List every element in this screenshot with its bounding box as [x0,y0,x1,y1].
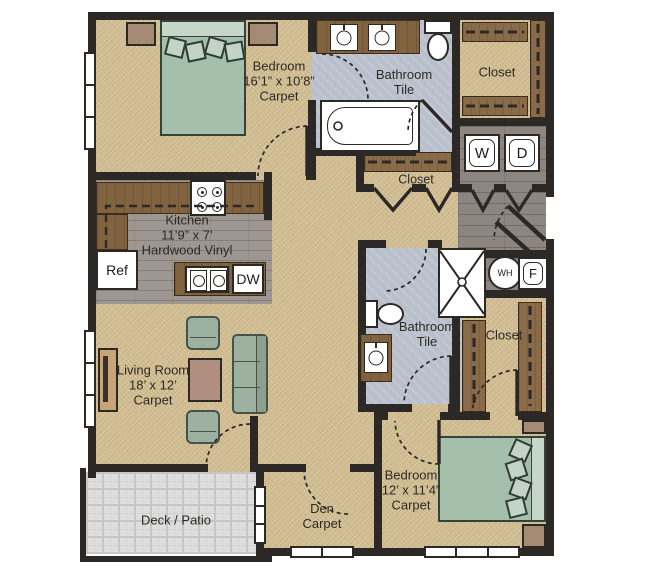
wall-living-bottom [88,464,208,472]
bathroom2-sink [364,342,388,373]
kitchen-name: Kitchen [142,213,233,228]
wall-bedroom1-bathroom1-b [308,100,316,180]
wall-kitchen-right [264,172,272,220]
kitchen-floor: Hardwood Vinyl [142,243,233,258]
living-room-dims: 18’ x 12’ [117,378,189,393]
armchair-bottom [186,410,220,444]
furnace: F [518,257,548,290]
label-bedroom2: Bedroom 12’ x 11’4” Carpet [382,468,441,513]
bathroom2-name: Bathroom [399,319,455,334]
living-room-name: Living Room [117,363,189,378]
toilet-bowl-bathroom1 [427,33,449,61]
wall-outer-top [88,12,554,20]
wall-wd-front-c [532,184,546,192]
bathroom2-floor: Tile [399,334,455,349]
wall-bedroom1-bottom [96,172,256,180]
bathroom1-floor: Tile [376,82,432,97]
sofa [232,334,268,414]
wall-utility-bottom [486,290,546,298]
den-name: Den [302,501,341,516]
washer-label: W [475,145,489,162]
refrigerator: Ref [96,250,138,290]
bedroom2-dims: 12’ x 11’4” [382,483,441,498]
closet-hall-name: Closet [398,173,433,188]
floor-plan: Ref DW WH F W D [0,0,650,585]
label-closet-hall: Closet [398,173,433,188]
window-bedroom1-left [84,52,96,150]
entry-door-gap [546,194,554,242]
tv [103,356,108,402]
closet-top-rod-upper [462,22,528,42]
nightstand-bedroom1-left [126,22,156,46]
closet-top-rod-lower [462,96,528,116]
label-bathroom1: Bathroom Tile [376,67,432,97]
bathroom1-name: Bathroom [376,67,432,82]
wall-den-top-a [250,464,306,472]
closet-top-name: Closet [479,65,516,80]
bathroom1-sink-1 [330,24,358,51]
wall-hall-closet-front-a [356,184,374,192]
wall-bathroom1-closet [452,20,460,192]
kitchen-sink [185,266,229,293]
toilet-bathroom2 [364,300,378,328]
wall-bedroom2-top-b [440,412,490,420]
wall-deck-left [80,468,86,562]
bedroom1-dims: 16’1” x 10’8” [243,74,315,89]
label-living-room: Living Room 18’ x 12’ Carpet [117,363,189,408]
dryer-label: D [517,145,528,162]
stove [190,180,226,216]
dishwasher-label: DW [236,271,259,287]
wall-closet-top-bottom [460,118,546,126]
wall-bathroom2-bottom-a [358,404,412,412]
coffee-table [188,358,222,402]
tv-console [98,348,118,412]
water-heater: WH [488,256,522,290]
label-bedroom1: Bedroom 16’1” x 10’8” Carpet [243,59,315,104]
dishwasher: DW [232,264,264,294]
kitchen-dims: 11’9” x 7’ [142,228,233,243]
nightstand-bedroom2-top [522,420,546,434]
label-kitchen: Kitchen 11’9” x 7’ Hardwood Vinyl [142,213,233,258]
wall-den-top-b [350,464,382,472]
window-living-left [84,330,96,428]
water-heater-label: WH [498,268,513,278]
window-bedroom2-bottom [424,546,520,558]
wall-wd-front-b [494,184,506,192]
closet-bedroom2-rod-left [462,320,486,412]
nightstand-bedroom1-right [248,22,278,46]
bedroom2-name: Bedroom [382,468,441,483]
wall-living-deck-stub [250,416,258,472]
bedroom1-floor: Carpet [243,89,315,104]
label-closet-top: Closet [479,65,516,80]
armchair-top [186,316,220,350]
sliding-door-den-deck [254,486,266,544]
wall-bathroom2-top-a [358,240,386,248]
kitchen-counter-top [96,182,264,214]
deck-name: Deck / Patio [141,513,211,528]
furnace-label: F [529,266,537,281]
wall-bathroom2-top-b [428,240,442,248]
bed-bedroom1 [160,20,246,136]
label-deck: Deck / Patio [141,513,211,528]
label-closet-bedroom2: Closet [486,328,523,343]
den-floor: Carpet [302,516,341,531]
bathroom1-sink-2 [368,24,396,51]
wall-deck-bottom [80,556,272,562]
closet-bedroom2-name: Closet [486,328,523,343]
washer: W [464,134,500,172]
wall-bedroom1-bathroom1-a [308,20,316,52]
nightstand-bedroom2-bottom [522,524,546,548]
refrigerator-label: Ref [106,262,128,278]
bedroom2-floor: Carpet [382,498,441,513]
bedroom1-name: Bedroom [243,59,315,74]
dryer: D [504,134,540,172]
wall-wd-front-a [458,184,472,192]
label-den: Den Carpet [302,501,341,531]
toilet-bathroom1 [424,20,452,34]
living-room-floor: Carpet [117,393,189,408]
bed-bedroom2 [438,436,546,522]
shower [438,248,486,318]
wall-bedroom2-top-c [518,412,546,420]
label-bathroom2: Bathroom Tile [399,319,455,349]
closet-bedroom2-rod-right [518,302,542,412]
kitchen-counter-left [96,214,128,250]
window-den-bottom [290,546,354,558]
closet-top-rod-side [530,20,546,118]
bathtub [320,100,420,152]
